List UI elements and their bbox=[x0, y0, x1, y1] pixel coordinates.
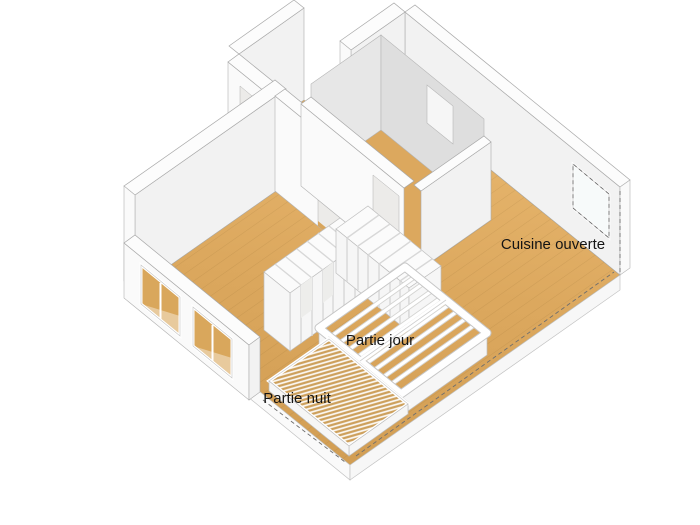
label-kitchen: Cuisine ouverte bbox=[501, 236, 605, 253]
floor-plan-stage: Cuisine ouverte Partie jour Partie nuit bbox=[0, 0, 700, 525]
label-night-area: Partie nuit bbox=[263, 390, 331, 407]
label-day-area: Partie jour bbox=[346, 332, 414, 349]
floor-plan-3d-view: Cuisine ouverte Partie jour Partie nuit bbox=[0, 0, 700, 525]
